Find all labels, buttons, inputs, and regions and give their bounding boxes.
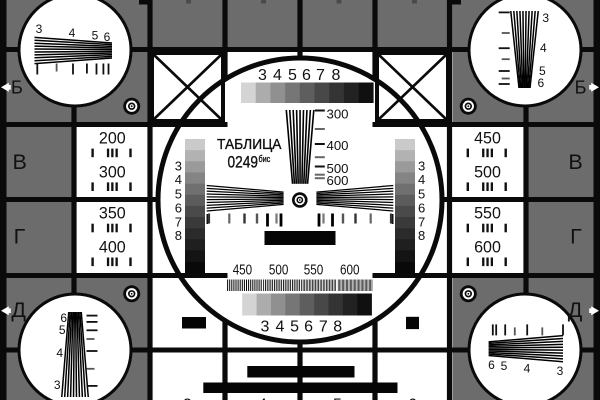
svg-text:4: 4 [418,172,425,187]
svg-text:500: 500 [269,263,289,279]
svg-text:6: 6 [538,76,545,90]
svg-text:6: 6 [488,358,495,372]
svg-text:450: 450 [233,263,253,279]
svg-text:4: 4 [524,362,531,376]
svg-text:Г: Г [570,224,582,248]
svg-text:4: 4 [540,41,547,55]
svg-text:7: 7 [319,319,328,336]
svg-text:5: 5 [92,29,99,43]
svg-text:5: 5 [290,319,299,336]
svg-text:600: 600 [474,237,501,256]
svg-text:400: 400 [99,237,126,256]
svg-text:8: 8 [332,67,341,84]
svg-text:3: 3 [36,22,43,36]
svg-text:4: 4 [276,319,285,336]
svg-text:3: 3 [54,378,61,392]
svg-text:600: 600 [340,263,360,279]
svg-text:6: 6 [302,67,311,84]
svg-text:6: 6 [418,200,425,215]
svg-text:3: 3 [183,397,192,400]
svg-text:550: 550 [474,204,501,223]
svg-text:8: 8 [333,319,342,336]
svg-text:3: 3 [557,364,564,378]
svg-text:6: 6 [175,200,182,215]
svg-text:500: 500 [474,162,501,181]
svg-text:300: 300 [99,162,126,181]
svg-text:5: 5 [501,359,508,373]
svg-text:Б: Б [575,78,587,98]
svg-text:600: 600 [327,173,349,188]
svg-text:300: 300 [327,107,349,122]
svg-text:400: 400 [327,138,349,153]
svg-text:В: В [568,150,582,174]
svg-text:4: 4 [258,397,267,400]
svg-text:8: 8 [418,228,425,243]
svg-text:6: 6 [304,319,313,336]
svg-text:6: 6 [408,397,417,400]
svg-text:350: 350 [99,204,126,223]
svg-text:В: В [13,150,27,174]
svg-text:4: 4 [175,172,182,187]
svg-text:5: 5 [175,186,182,201]
svg-text:5: 5 [333,397,342,400]
svg-text:Б: Б [11,78,23,98]
svg-text:Д: Д [568,298,583,322]
svg-text:0249: 0249 [228,153,259,172]
svg-text:бис: бис [259,154,271,164]
svg-text:5: 5 [288,67,297,84]
svg-text:ТАБЛИЦА: ТАБЛИЦА [217,137,282,153]
svg-text:200: 200 [99,129,126,148]
svg-text:3: 3 [542,11,549,25]
svg-text:3: 3 [258,67,267,84]
svg-text:3: 3 [260,319,269,336]
svg-text:Д: Д [11,298,26,322]
svg-text:4: 4 [273,67,282,84]
svg-text:450: 450 [474,129,501,148]
svg-text:7: 7 [316,67,325,84]
svg-text:6: 6 [104,30,111,44]
svg-text:4: 4 [56,346,63,360]
svg-text:Г: Г [14,224,26,248]
svg-text:5: 5 [418,186,425,201]
svg-text:5: 5 [59,323,66,337]
svg-text:8: 8 [175,228,182,243]
svg-text:4: 4 [69,26,76,40]
svg-text:550: 550 [304,263,324,279]
